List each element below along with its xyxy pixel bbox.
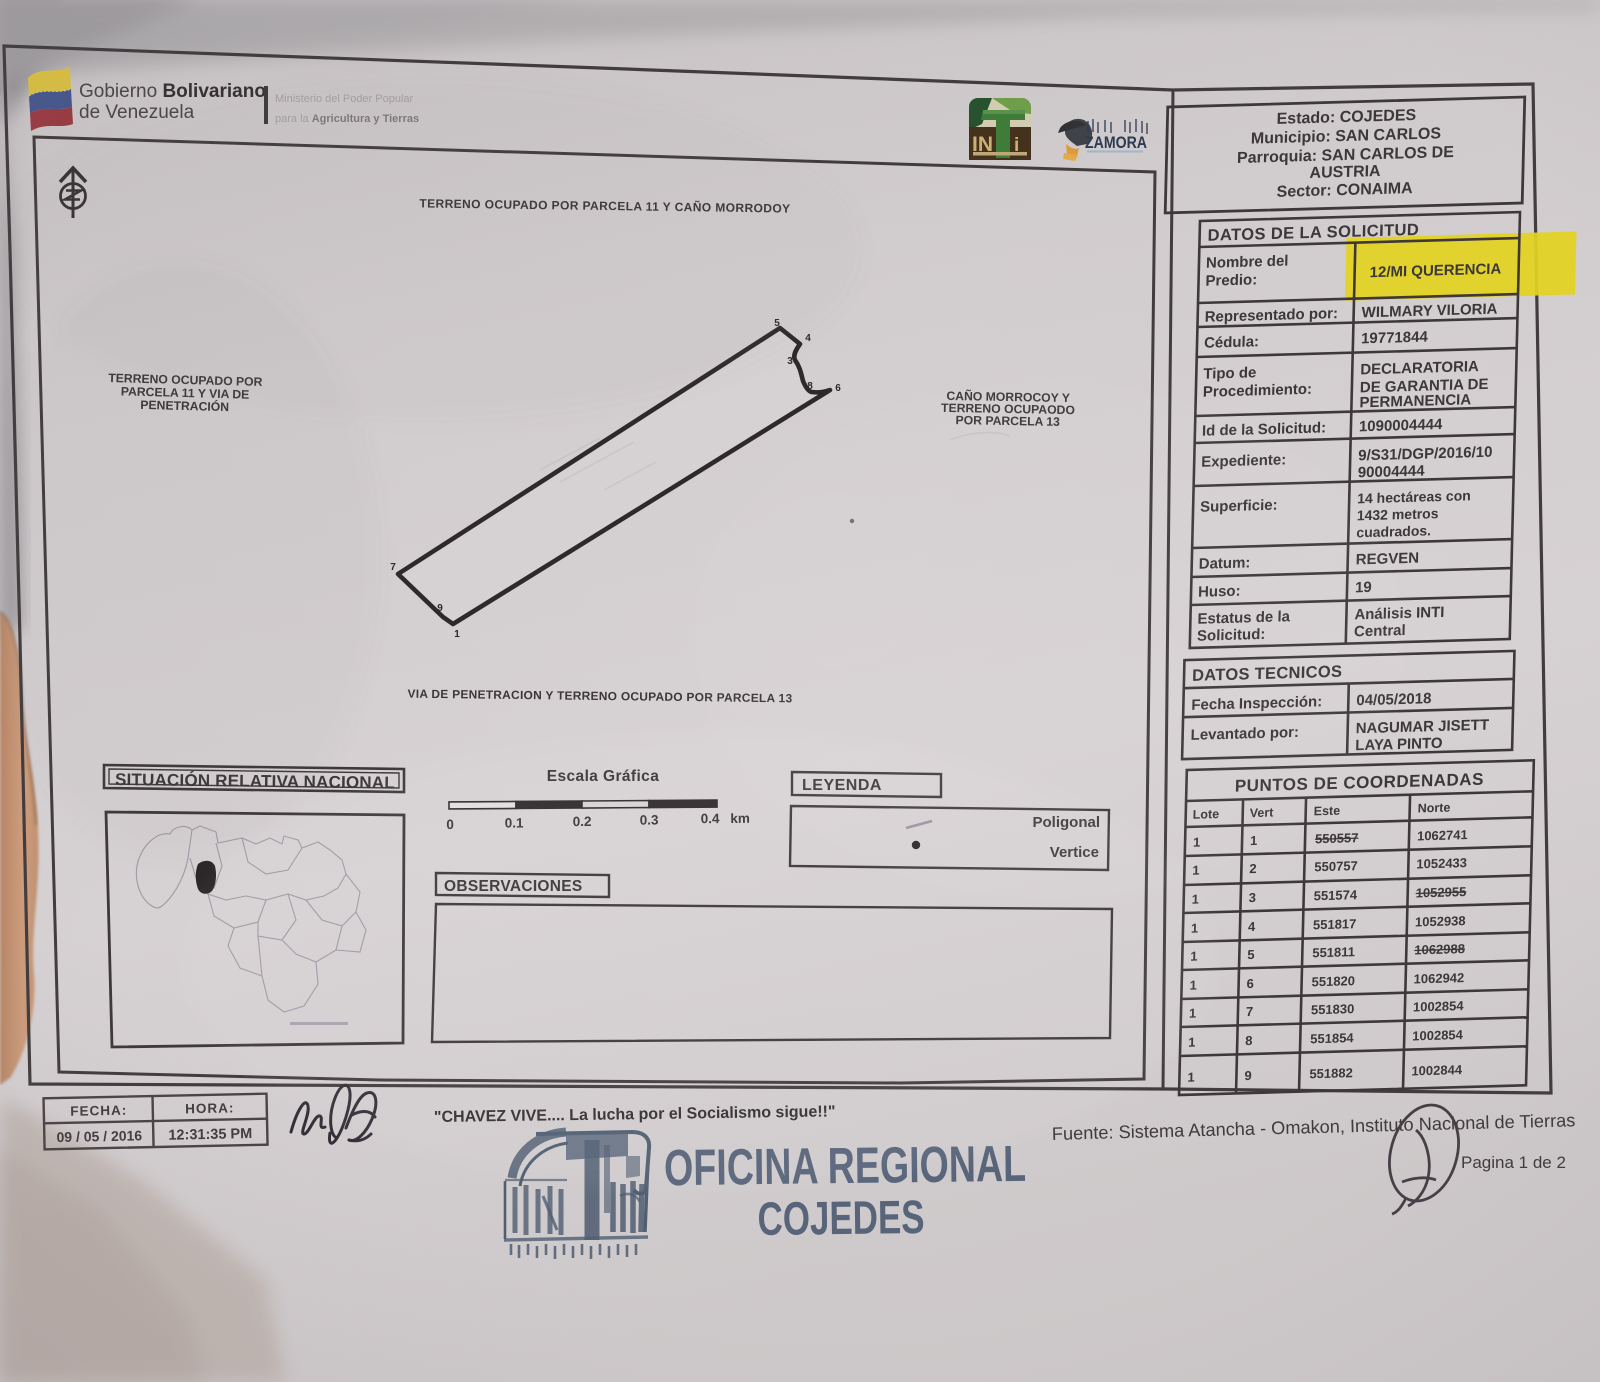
svg-text:551811: 551811 [1312,944,1355,960]
svg-text:HORA:: HORA: [185,1100,235,1116]
svg-text:551817: 551817 [1313,916,1357,932]
svg-text:1062942: 1062942 [1413,970,1464,986]
svg-text:1062741: 1062741 [1417,827,1468,843]
svg-text:12:31:35 PM: 12:31:35 PM [168,1126,252,1144]
svg-text:1052433: 1052433 [1416,855,1467,871]
svg-text:551820: 551820 [1311,973,1355,989]
svg-text:8: 8 [1245,1033,1253,1048]
svg-text:551830: 551830 [1311,1001,1355,1017]
svg-text:9: 9 [1244,1068,1252,1083]
svg-text:551574: 551574 [1314,887,1358,903]
svg-text:551854: 551854 [1310,1030,1354,1046]
svg-text:2: 2 [1249,861,1257,876]
svg-text:6: 6 [1246,976,1254,991]
svg-text:19771844: 19771844 [1361,329,1429,348]
svg-text:Tipo de: Tipo de [1203,364,1256,382]
svg-text:550757: 550757 [1314,858,1358,874]
svg-text:6: 6 [835,383,841,394]
svg-text:1090004444: 1090004444 [1359,416,1443,435]
svg-text:1062988: 1062988 [1414,941,1465,957]
svg-text:Predio:: Predio: [1205,271,1257,289]
svg-text:ZAMORA: ZAMORA [1085,134,1147,152]
svg-text:1: 1 [1187,1070,1195,1085]
svg-text:90004444: 90004444 [1358,463,1426,482]
svg-text:09 / 05 / 2016: 09 / 05 / 2016 [56,1127,142,1145]
svg-text:Procedimiento:: Procedimiento: [1203,381,1313,401]
svg-text:PERMANENCIA: PERMANENCIA [1359,391,1471,411]
svg-text:Cédula:: Cédula: [1204,333,1259,352]
svg-text:1002854: 1002854 [1412,1027,1464,1043]
svg-text:7: 7 [1246,1004,1254,1019]
svg-text:3: 3 [787,356,793,367]
svg-text:1052938: 1052938 [1415,913,1466,929]
svg-text:8: 8 [807,381,813,392]
svg-text:1002854: 1002854 [1413,998,1465,1014]
svg-text:14 hectáreas con: 14 hectáreas con [1357,487,1471,506]
svg-text:AUSTRIA: AUSTRIA [1309,163,1381,182]
svg-text:COJEDES: COJEDES [757,1190,925,1245]
svg-text:9: 9 [437,603,443,614]
svg-text:4: 4 [805,333,811,344]
svg-text:DECLARATORIA: DECLARATORIA [1360,358,1479,378]
svg-text:Norte: Norte [1418,801,1451,816]
svg-text:Nombre del: Nombre del [1206,252,1289,271]
svg-text:4: 4 [1248,919,1256,934]
svg-text:1002844: 1002844 [1411,1062,1463,1078]
svg-text:1: 1 [454,629,460,640]
svg-text:3: 3 [1249,890,1257,905]
svg-text:7: 7 [390,562,396,573]
svg-text:5: 5 [1247,947,1255,962]
svg-text:551882: 551882 [1309,1065,1353,1081]
svg-text:1052955: 1052955 [1416,884,1467,900]
svg-text:550557: 550557 [1315,830,1359,846]
svg-text:FECHA:: FECHA: [70,1103,127,1119]
svg-text:Pagina 1 de 2: Pagina 1 de 2 [1461,1153,1566,1172]
